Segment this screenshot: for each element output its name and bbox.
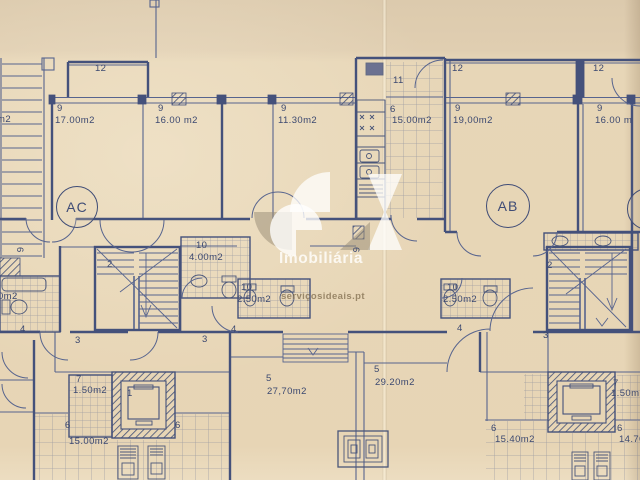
room-label: 3 bbox=[75, 336, 81, 346]
room-label: 6 bbox=[175, 421, 181, 431]
room-label: 1 bbox=[127, 389, 133, 399]
elevator-right bbox=[548, 372, 615, 432]
room-label: 10 bbox=[447, 283, 458, 293]
wall-piers bbox=[0, 60, 635, 276]
room-label: 9 bbox=[158, 104, 164, 114]
room-label: 11.30m2 bbox=[278, 116, 317, 126]
room-label: 12 bbox=[593, 64, 604, 74]
room-label: 6 bbox=[617, 424, 623, 434]
room-label: 5 bbox=[374, 365, 380, 375]
room-label: 3 bbox=[202, 335, 208, 345]
room-label: m2 bbox=[0, 115, 11, 125]
room-label: 1.50m2 bbox=[73, 386, 107, 396]
room-label: 14.70 bbox=[619, 435, 640, 445]
room-label: 15.00m2 bbox=[69, 437, 109, 447]
room-label: 6 bbox=[65, 421, 71, 431]
room-label: 10 bbox=[241, 283, 252, 293]
room-label: 4 bbox=[457, 324, 463, 334]
unit-badge-ac-label: AC bbox=[66, 199, 87, 215]
room-label: 1.50m bbox=[611, 389, 639, 399]
room-label: 29.20m2 bbox=[375, 378, 415, 388]
room-label: 2 bbox=[107, 260, 113, 270]
room-label: 10 bbox=[196, 241, 207, 251]
floorplan-scan: 12917.00m2916.00 m2911.30m211615.00m2129… bbox=[0, 0, 640, 480]
room-label: 9 bbox=[455, 104, 461, 114]
unit-badge-ab-label: AB bbox=[498, 198, 519, 214]
watermark-logo bbox=[254, 172, 402, 256]
room-label: 9 bbox=[57, 104, 63, 114]
room-label: 6 bbox=[390, 105, 396, 115]
room-label: 16.00 m bbox=[595, 116, 632, 126]
room-label: 9 bbox=[597, 104, 603, 114]
room-label: 2 bbox=[547, 261, 553, 271]
room-label: 17.00m2 bbox=[55, 116, 95, 126]
room-label: 11 bbox=[393, 76, 404, 86]
watermark-brand: Imobiliária bbox=[279, 250, 363, 268]
stairwell-right bbox=[549, 249, 627, 329]
room-label: 12 bbox=[95, 64, 106, 74]
room-label: 6 bbox=[491, 424, 497, 434]
room-label: 4.00m2 bbox=[189, 253, 223, 263]
unit-badge-ab: AB bbox=[486, 184, 530, 228]
room-label: 6 bbox=[15, 247, 25, 253]
stairs-middle bbox=[283, 334, 348, 362]
unit-badge-ac: AC bbox=[56, 186, 98, 228]
room-label: 4 bbox=[231, 325, 237, 335]
room-label: 19,00m2 bbox=[453, 116, 493, 126]
room-label: 16.00 m2 bbox=[155, 116, 198, 126]
room-label: 27,70m2 bbox=[267, 387, 307, 397]
elevator-left bbox=[112, 372, 175, 438]
room-label: 15.00m2 bbox=[392, 116, 432, 126]
watermark-site: serviçosideais.pt bbox=[281, 291, 365, 302]
room-label: 9 bbox=[281, 104, 287, 114]
room-label: 3 bbox=[543, 331, 549, 341]
room-label: 2.50m2 bbox=[237, 295, 271, 305]
room-label: 2.50m2 bbox=[443, 295, 477, 305]
room-label: 7 bbox=[76, 375, 82, 385]
room-label: 12 bbox=[452, 64, 463, 74]
room-label: 4 bbox=[20, 325, 26, 335]
room-label: 5 bbox=[266, 374, 272, 384]
room-label: 0m2 bbox=[0, 292, 18, 302]
room-label: 15.40m2 bbox=[495, 435, 535, 445]
